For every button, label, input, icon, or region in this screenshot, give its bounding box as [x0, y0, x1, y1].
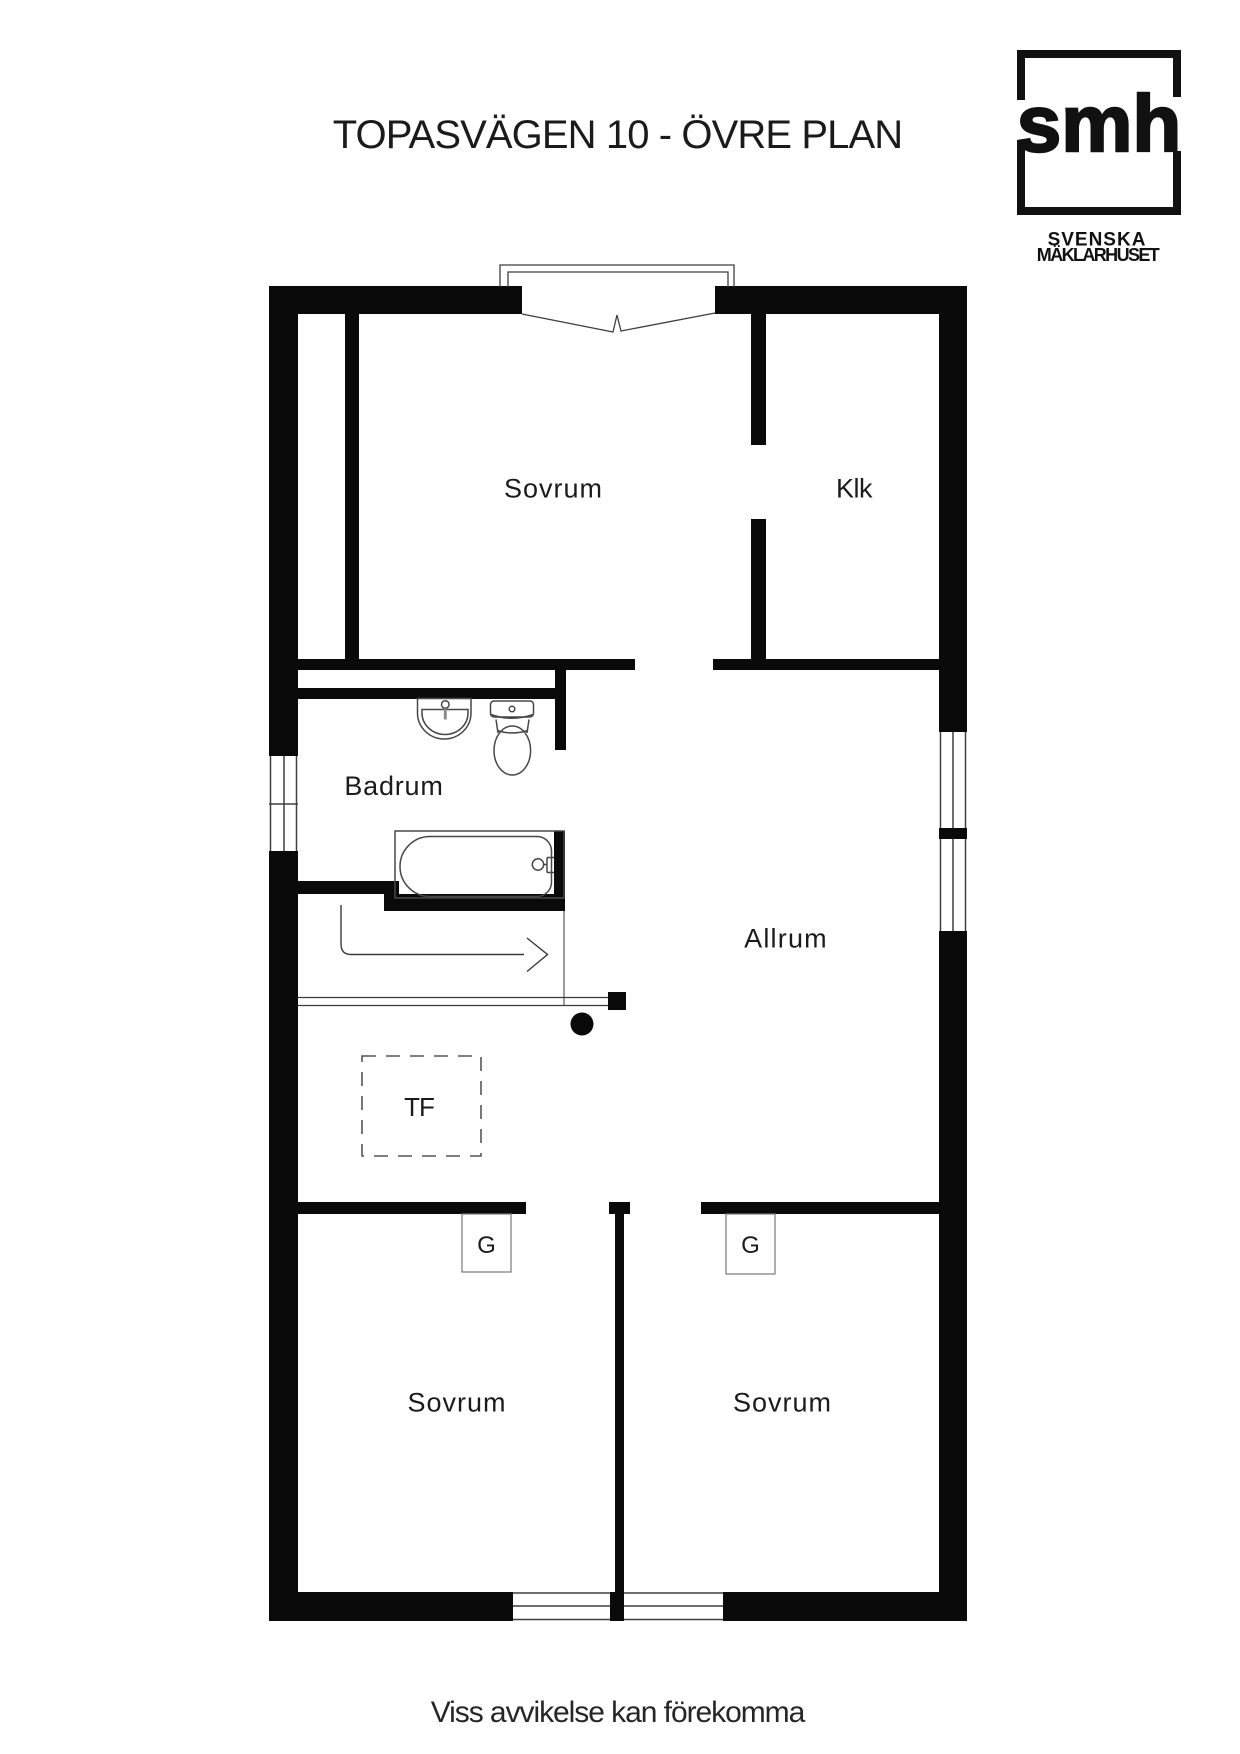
svg-text:smh: smh	[1017, 79, 1182, 168]
svg-text:Sovrum: Sovrum	[504, 474, 603, 504]
svg-text:Sovrum: Sovrum	[733, 1388, 832, 1418]
svg-text:Viss avvikelse kan förekomma: Viss avvikelse kan förekomma	[431, 1696, 806, 1729]
svg-text:Allrum: Allrum	[744, 924, 828, 954]
svg-text:G: G	[477, 1232, 496, 1259]
svg-text:MÄKLARHUSET: MÄKLARHUSET	[1037, 245, 1160, 265]
svg-text:TOPASVÄGEN 10 - ÖVRE PLAN: TOPASVÄGEN 10 - ÖVRE PLAN	[333, 113, 903, 157]
svg-text:Sovrum: Sovrum	[407, 1388, 506, 1418]
svg-text:Badrum: Badrum	[344, 771, 443, 801]
svg-text:G: G	[741, 1232, 760, 1259]
svg-text:TF: TF	[404, 1092, 434, 1122]
svg-text:Klk: Klk	[836, 474, 873, 504]
